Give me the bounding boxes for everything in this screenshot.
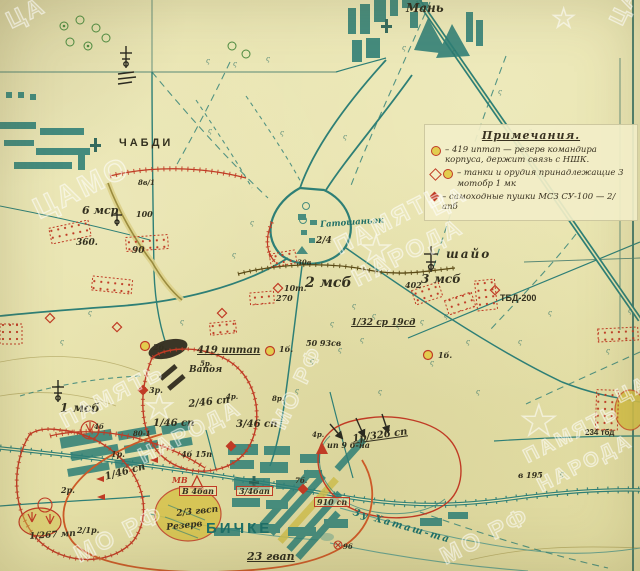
legend-item: – 419 иптап — резерв командира корпуса, … xyxy=(431,145,631,165)
legend-item-text: – 419 иптап — резерв командира корпуса, … xyxy=(445,145,631,165)
town-blocks-man xyxy=(348,0,483,62)
tree-icons xyxy=(60,16,250,58)
scanned-map: Примечания. – 419 иптап — резерв команди… xyxy=(0,0,640,571)
circle-yellow-icon xyxy=(431,146,441,156)
town-blocks-hamlet xyxy=(296,203,317,255)
town-blocks-chabdi xyxy=(0,92,101,170)
legend-symbols xyxy=(431,145,441,156)
red-annotations xyxy=(0,169,638,571)
diamond-solid-icon xyxy=(430,191,440,201)
legend-items: – 419 иптап — резерв командира корпуса, … xyxy=(431,145,631,212)
circle-yellow-icon xyxy=(443,169,453,179)
legend-item-text: – самоходные пушки МСЗ СУ-100 — 2/апб xyxy=(442,192,631,212)
legend-symbols xyxy=(431,168,453,179)
legend-panel: Примечания. – 419 иптап — резерв команди… xyxy=(424,124,638,221)
town-blocks-bicske xyxy=(60,415,468,560)
map-artwork xyxy=(0,0,640,571)
legend-item-text: – танки и орудия принадлежащие 3 мотобр … xyxy=(457,168,631,188)
legend-item: – самоходные пушки МСЗ СУ-100 — 2/апб xyxy=(431,192,631,212)
diamond-hollow-icon xyxy=(429,168,442,181)
legend-symbols xyxy=(431,192,438,200)
legend-title: Примечания. xyxy=(431,129,631,142)
minefield-icons xyxy=(0,220,638,430)
observation-post-icons xyxy=(52,46,438,402)
church-icon xyxy=(90,138,101,152)
legend-item: – танки и орудия принадлежащие 3 мотобр … xyxy=(431,168,631,188)
